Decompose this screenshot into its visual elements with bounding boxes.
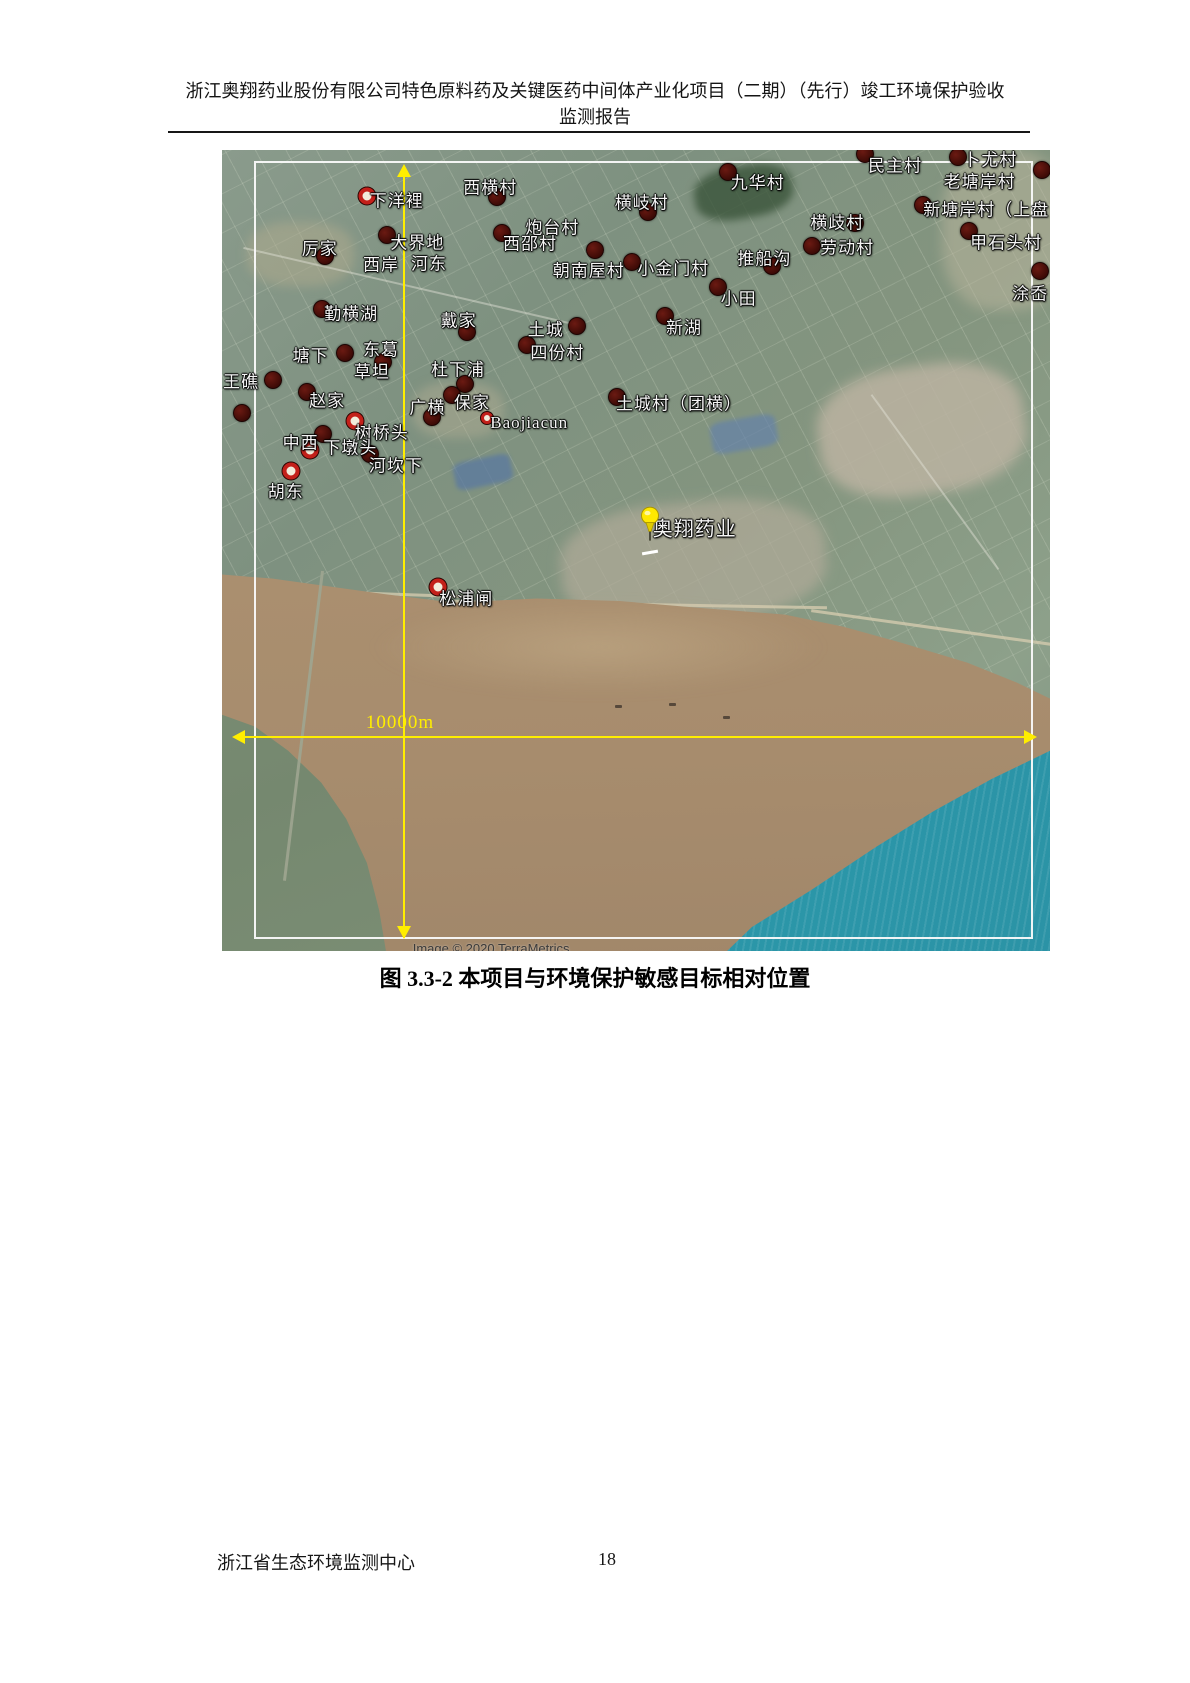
map-place-label: 河东 <box>411 250 447 275</box>
map-place-label: 西岸 <box>363 250 399 275</box>
map-place-label: 广横 <box>409 394 445 419</box>
map-place-label: 小田 <box>721 284 757 309</box>
map-place-label: 四份村 <box>530 339 584 364</box>
map-marker <box>803 237 821 255</box>
map-place-label: 中西 <box>283 428 319 453</box>
map-marker <box>264 371 282 389</box>
arrowhead-left-icon <box>232 730 245 744</box>
map-place-label: 横歧村 <box>810 209 864 234</box>
map-marker <box>1033 161 1050 179</box>
report-header: 浙江奥翔药业股份有限公司特色原料药及关键医药中间体产业化项目（二期）（先行）竣工… <box>0 78 1190 130</box>
map-place-label: 土城村（团横） <box>616 390 742 415</box>
map-place-label: 九华村 <box>731 169 785 194</box>
map-place-label: 王礁 <box>223 367 259 392</box>
report-header-line2: 监测报告 <box>0 104 1190 130</box>
map-place-label: 新塘岸村（上盘 <box>923 195 1049 220</box>
map-place-label: 横岐村 <box>615 189 669 214</box>
figure-caption: 图 3.3-2 本项目与环境保护敏感目标相对位置 <box>0 961 1190 993</box>
footer-organization: 浙江省生态环境监测中心 <box>217 1549 415 1575</box>
map-place-label: Baojiacun <box>490 413 568 433</box>
map-place-label: 厉家 <box>302 234 338 259</box>
map-place-label: 民主村 <box>868 151 922 176</box>
scale-arrow-line <box>240 736 1027 738</box>
map-place-label: 松浦闸 <box>439 584 493 609</box>
map-place-label: 涂岙 <box>1012 279 1048 304</box>
header-divider <box>168 131 1030 133</box>
map-place-label: 东葛 <box>363 335 399 360</box>
map-place-label: 小金门村 <box>637 254 709 279</box>
map-place-label: 戴家 <box>441 307 477 332</box>
map-place-label: 奥翔药业 <box>653 513 737 542</box>
map-place-label: 朝南屋村 <box>553 257 625 282</box>
map-place-label: 杜下浦 <box>431 355 485 380</box>
map-place-label: 西横村 <box>463 174 517 199</box>
map-place-label: 河坎下 <box>369 451 423 476</box>
north-south-axis-line <box>403 174 405 938</box>
map-place-label: 推船沟 <box>737 245 791 270</box>
arrowhead-up-icon <box>397 164 411 177</box>
map-place-label: 赵家 <box>309 387 345 412</box>
scale-label: 10000m <box>366 712 434 734</box>
satellite-map: 10000m 下洋裡西横村横岐村九华村民主村卜尤村老塘岸村新塘岸村（上盘甲石头村… <box>222 150 1050 951</box>
map-place-label: 老塘岸村 <box>944 167 1016 192</box>
arrowhead-right-icon <box>1024 730 1037 744</box>
map-place-label: 下洋裡 <box>370 186 424 211</box>
map-marker <box>1031 262 1049 280</box>
map-place-label: 土城 <box>528 315 564 340</box>
map-place-label: 胡东 <box>268 477 304 502</box>
site-pushpin-icon <box>638 507 662 548</box>
map-marker <box>568 317 586 335</box>
arrowhead-down-icon <box>397 926 411 939</box>
map-place-label: 劳动村 <box>820 234 874 259</box>
map-place-label: 新湖 <box>666 314 702 339</box>
map-place-label: 西邵村 <box>503 230 557 255</box>
map-place-label: 甲石头村 <box>970 229 1042 254</box>
map-marker <box>233 404 251 422</box>
map-place-label: 草坦 <box>354 358 390 383</box>
imagery-attribution: Image © 2020 TerraMetrics <box>413 941 570 951</box>
map-place-label: 塘下 <box>293 342 329 367</box>
map-place-label: 保家 <box>454 388 490 413</box>
map-marker <box>336 344 354 362</box>
footer-page-number: 18 <box>598 1549 616 1570</box>
report-header-line1: 浙江奥翔药业股份有限公司特色原料药及关键医药中间体产业化项目（二期）（先行）竣工… <box>0 78 1190 104</box>
map-place-label: 勤横湖 <box>324 299 378 324</box>
